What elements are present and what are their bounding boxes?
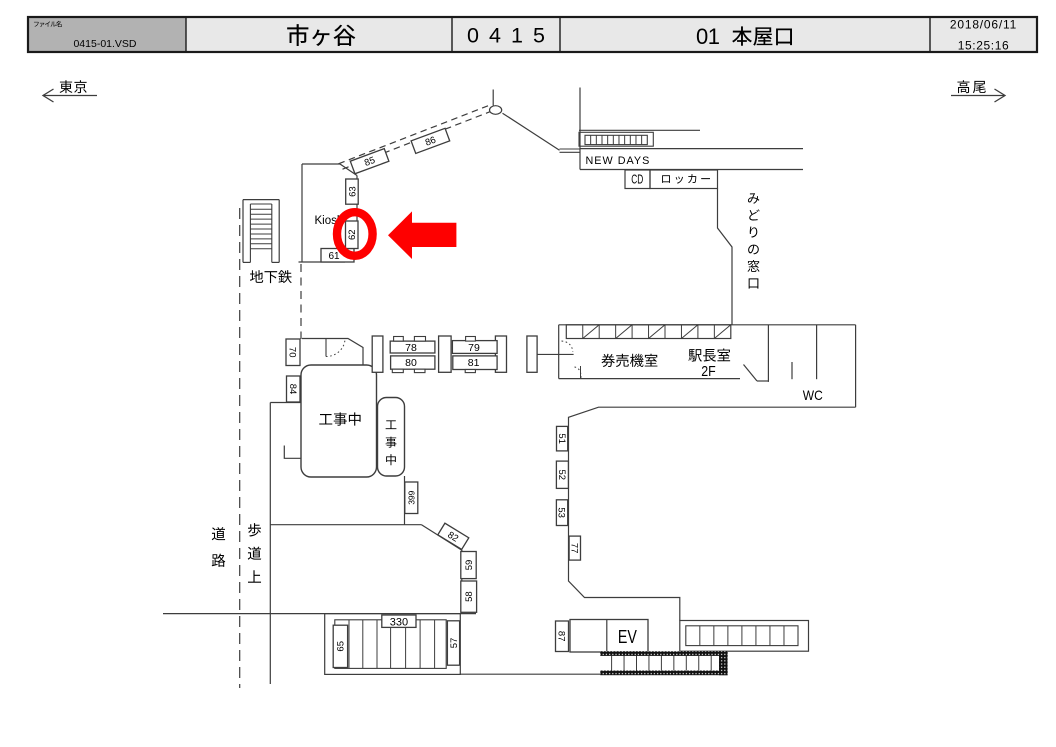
svg-text:61: 61 [328, 251, 340, 262]
svg-text:51: 51 [556, 433, 567, 444]
svg-text:1: 1 [511, 24, 523, 48]
svg-text:5: 5 [533, 24, 545, 48]
svg-text:2018/06/11: 2018/06/11 [950, 17, 1017, 31]
svg-text:77: 77 [568, 543, 579, 554]
svg-text:78: 78 [405, 342, 417, 354]
svg-text:399: 399 [406, 490, 416, 504]
svg-text:58: 58 [464, 591, 475, 602]
svg-text:EV: EV [618, 626, 638, 647]
svg-text:4: 4 [489, 24, 501, 48]
svg-text:52: 52 [556, 469, 567, 480]
svg-text:87: 87 [556, 631, 567, 642]
svg-text:70: 70 [287, 347, 298, 358]
svg-text:0: 0 [467, 24, 479, 48]
svg-text:80: 80 [405, 357, 417, 369]
svg-text:62: 62 [347, 229, 358, 240]
svg-text:79: 79 [468, 342, 480, 354]
svg-text:330: 330 [390, 616, 408, 628]
svg-text:15:25:16: 15:25:16 [958, 39, 1010, 53]
svg-text:2F: 2F [701, 363, 716, 380]
svg-text:53: 53 [556, 507, 567, 518]
svg-text:01: 01 [696, 24, 720, 49]
svg-text:63: 63 [347, 186, 358, 197]
svg-text:65: 65 [336, 641, 347, 652]
svg-text:59: 59 [464, 560, 475, 571]
svg-text:84: 84 [287, 384, 298, 395]
svg-text:WC: WC [803, 387, 823, 403]
svg-text:0415-01.VSD: 0415-01.VSD [73, 38, 136, 50]
svg-text:81: 81 [468, 357, 480, 369]
svg-text:57: 57 [449, 638, 460, 649]
svg-text:NEW DAYS: NEW DAYS [586, 155, 651, 167]
svg-text:CD: CD [631, 173, 643, 187]
